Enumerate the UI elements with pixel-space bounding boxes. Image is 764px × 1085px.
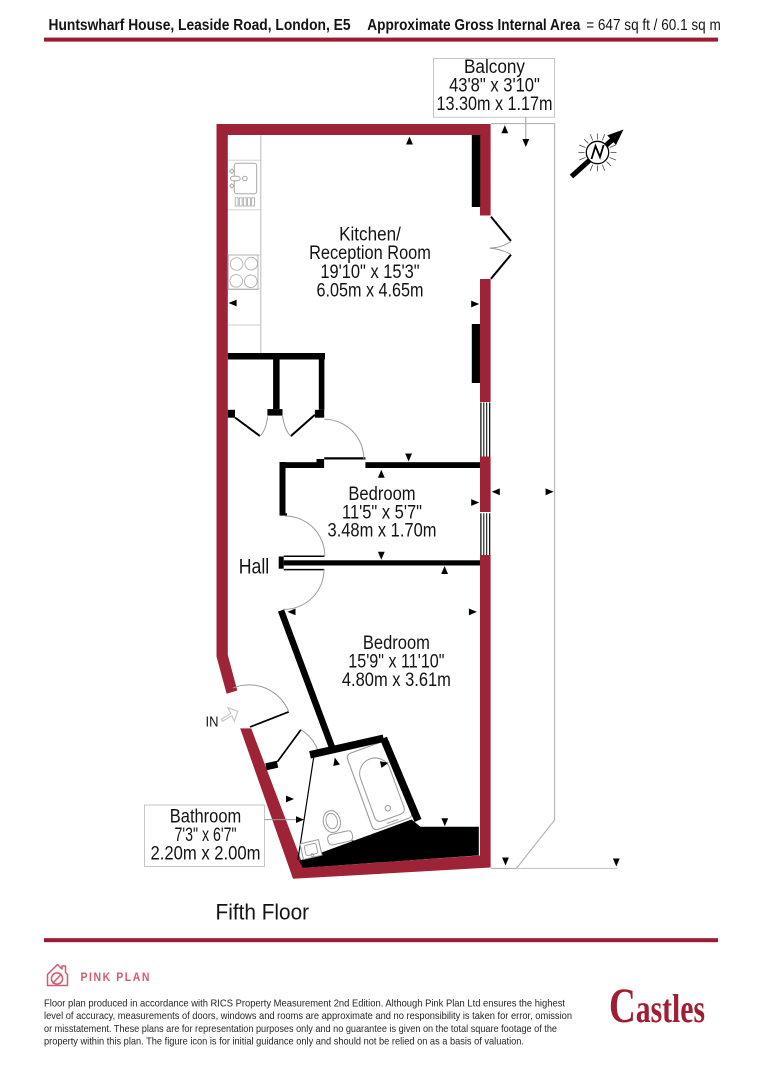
svg-text:2.20m x 2.00m: 2.20m x 2.00m xyxy=(151,844,261,865)
svg-text:Fifth Floor: Fifth Floor xyxy=(216,900,310,925)
svg-text:level of accuracy, measurement: level of accuracy, measurements of doors… xyxy=(44,1011,572,1022)
svg-text:PINK PLAN: PINK PLAN xyxy=(81,970,152,984)
svg-text:3.48m x 1.70m: 3.48m x 1.70m xyxy=(328,521,437,542)
svg-text:= 647 sq ft / 60.1 sq m: = 647 sq ft / 60.1 sq m xyxy=(586,17,721,34)
svg-text:Hall: Hall xyxy=(239,556,270,579)
svg-text:6.05m x 4.65m: 6.05m x 4.65m xyxy=(317,281,424,302)
svg-text:property within this plan. The: property within this plan. The figure ic… xyxy=(44,1037,524,1048)
svg-text:IN: IN xyxy=(206,715,219,731)
svg-text:Floor plan produced in accorda: Floor plan produced in accordance with R… xyxy=(44,999,565,1010)
svg-text:Castles: Castles xyxy=(609,977,705,1033)
svg-text:4.80m x 3.61m: 4.80m x 3.61m xyxy=(342,670,451,691)
svg-text:Huntswharf House, Leaside Road: Huntswharf House, Leaside Road, London, … xyxy=(49,17,351,34)
svg-text:13.30m x 1.17m: 13.30m x 1.17m xyxy=(437,94,553,115)
svg-text:Approximate Gross Internal Are: Approximate Gross Internal Area xyxy=(367,17,580,34)
svg-text:or misstatement. These plans a: or misstatement. These plans are for rep… xyxy=(44,1024,557,1035)
